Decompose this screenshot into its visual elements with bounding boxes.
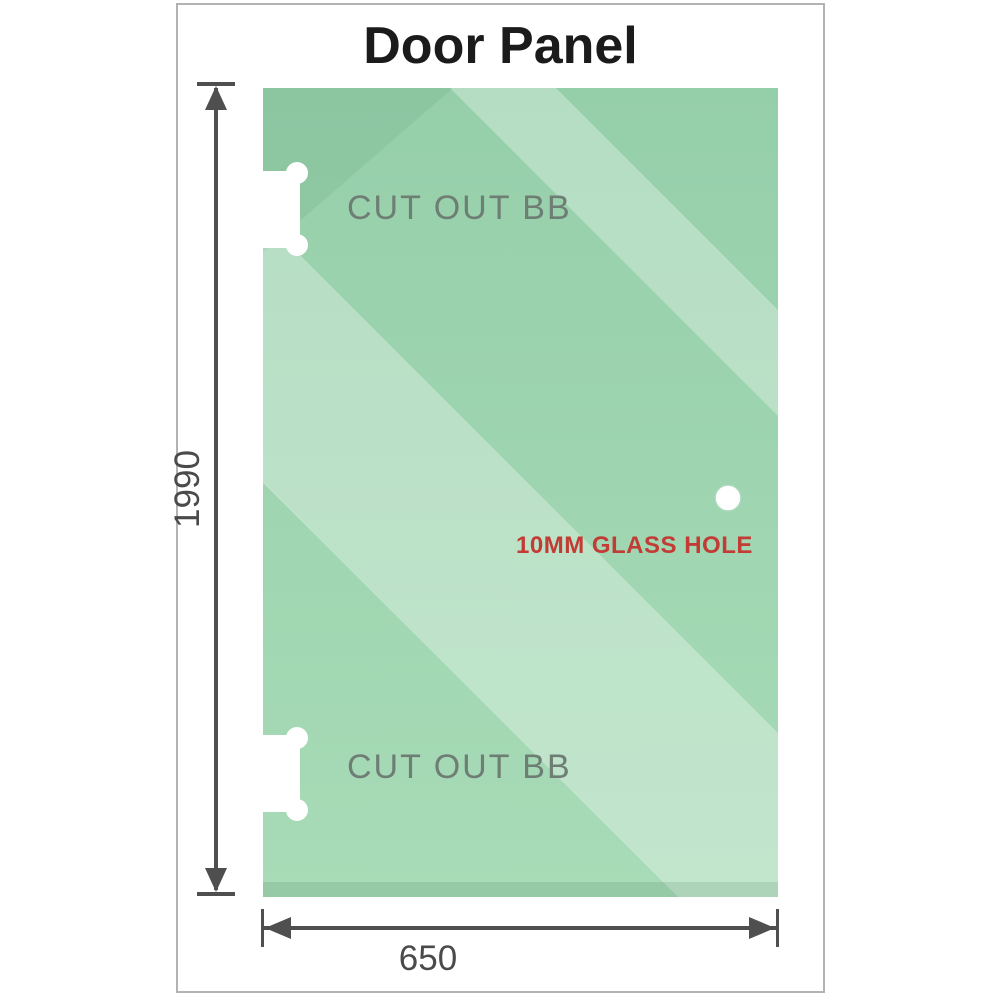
height-dim-cap-bottom [197,892,235,896]
cutout-bottom-label: CUT OUT BB [347,749,572,785]
width-dim-tick-left [261,909,264,947]
diagram-title: Door Panel [176,16,825,76]
glass-bottom-edge-shade [263,882,778,897]
cutout-top-label: CUT OUT BB [347,190,572,226]
width-dimension-arrow [261,909,779,949]
height-dimension-value: 1990 [168,419,208,559]
glass-hole [715,485,741,511]
width-dimension-value: 650 [388,941,468,977]
height-dim-arrowhead-down [205,868,227,892]
width-dim-line [264,926,776,930]
glass-hole-label: 10MM GLASS HOLE [516,533,753,559]
height-dim-line [214,88,218,890]
width-dim-tick-right [776,909,779,947]
height-dim-cap-top [197,82,235,86]
door-panel-diagram: Door Panel [0,0,1000,1000]
width-dim-arrowhead-left [265,917,291,939]
width-dim-arrowhead-right [749,917,775,939]
